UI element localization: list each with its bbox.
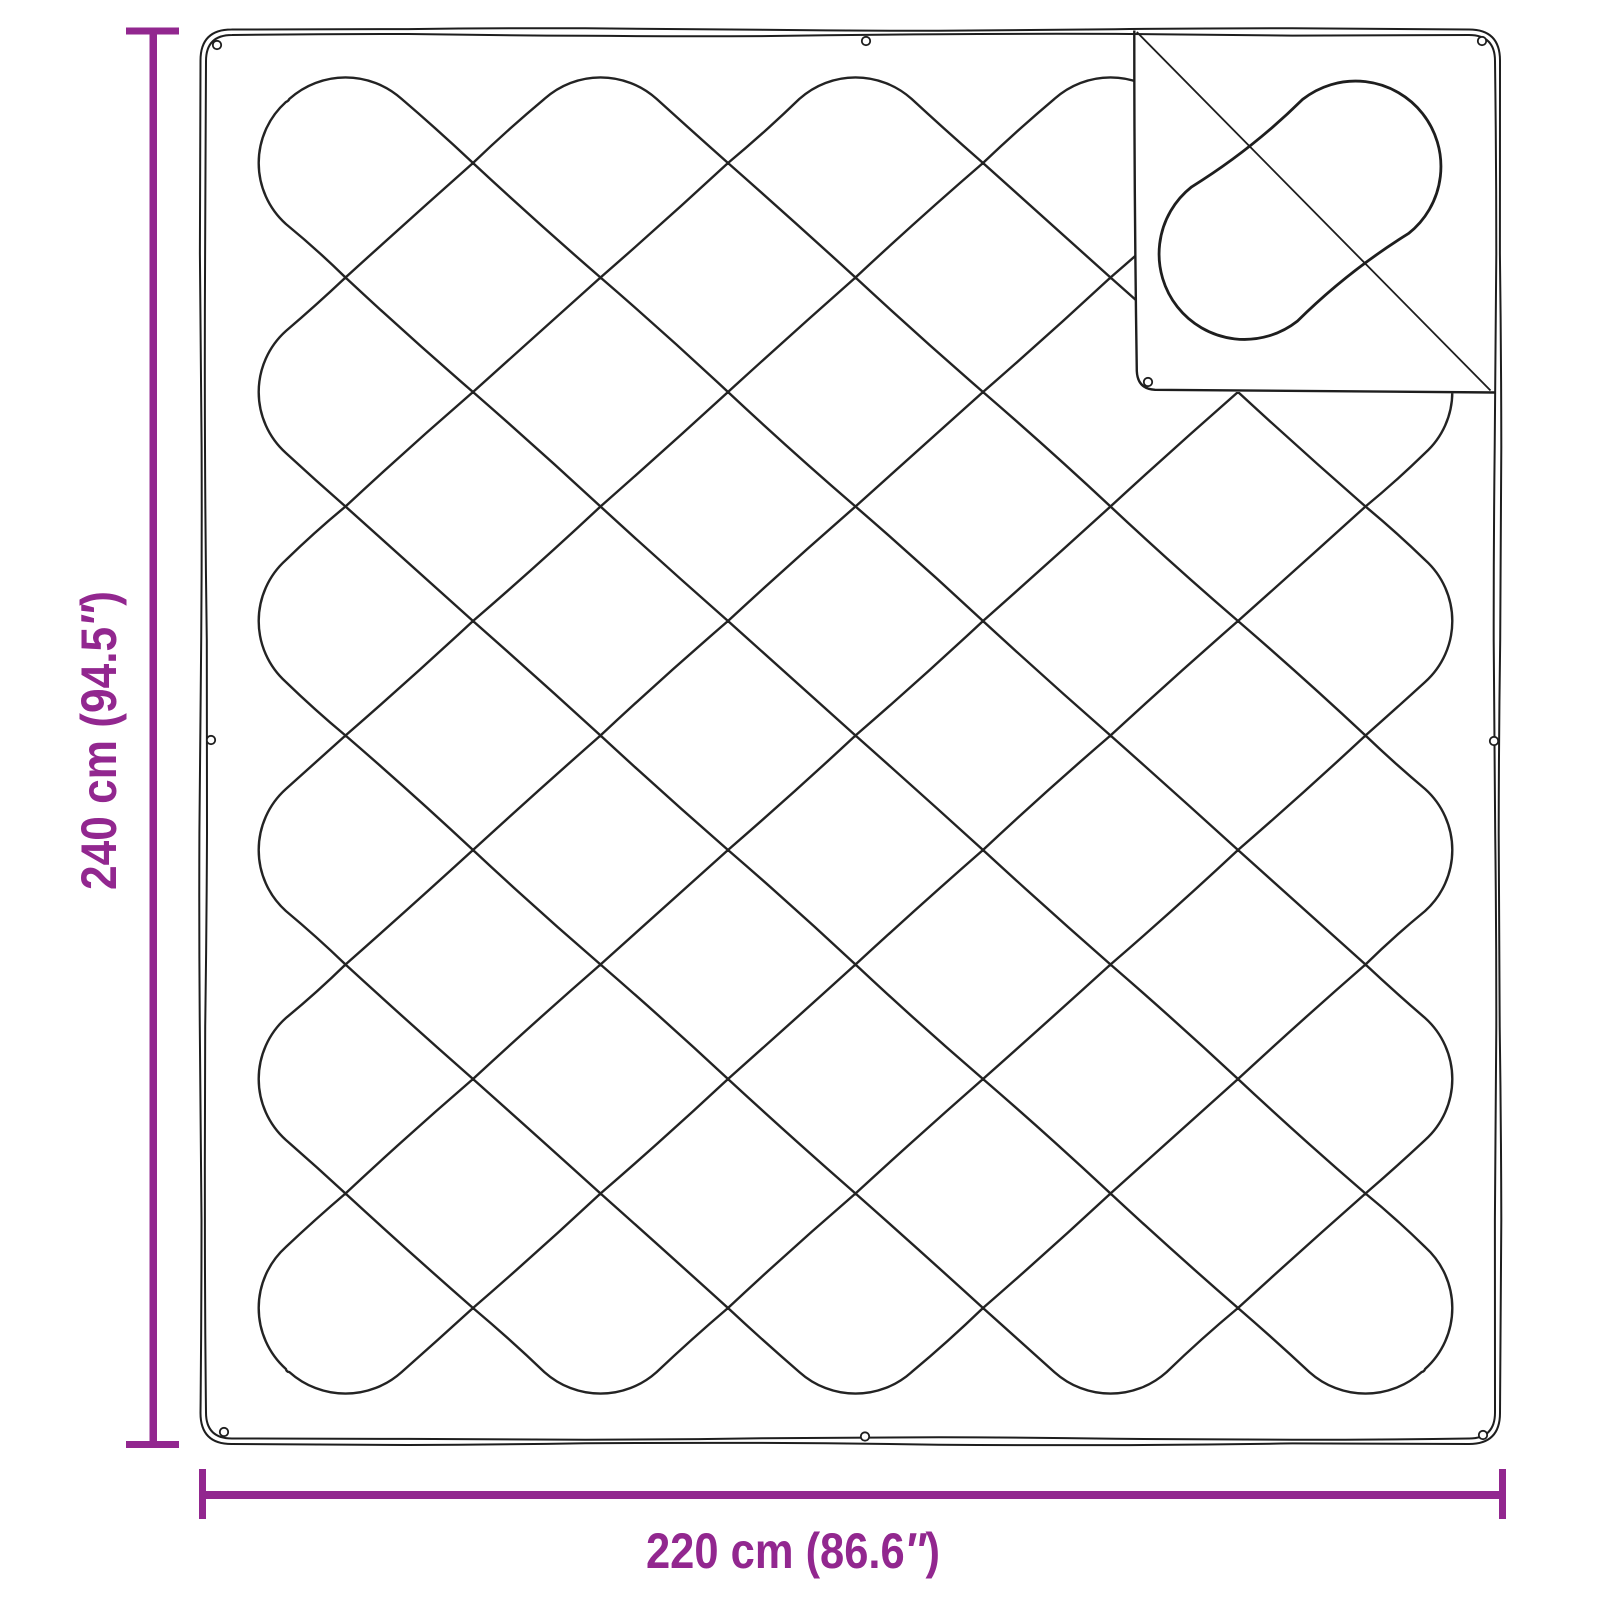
svg-text:220 cm (86.6″): 220 cm (86.6″) <box>646 1523 940 1579</box>
svg-text:240 cm (94.5″): 240 cm (94.5″) <box>71 591 127 890</box>
